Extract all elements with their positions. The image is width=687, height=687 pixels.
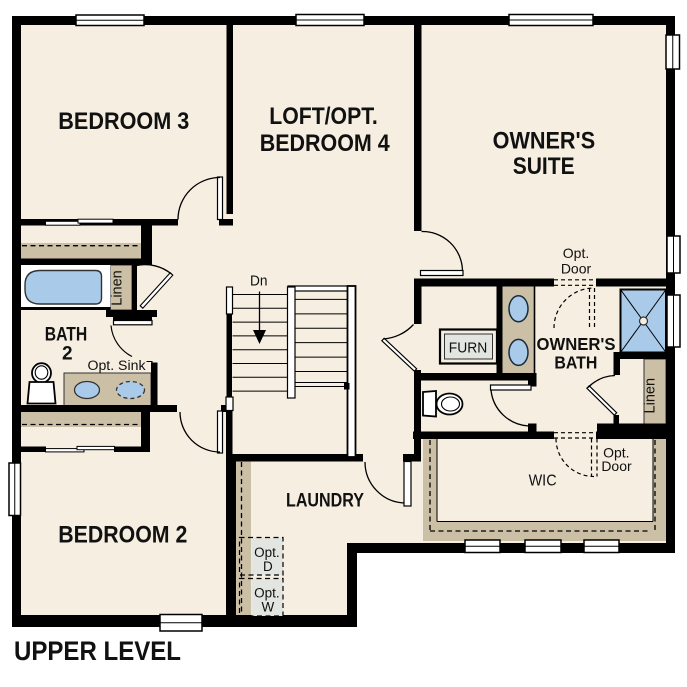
svg-text:BATH: BATH <box>45 325 88 346</box>
svg-text:FURN: FURN <box>449 339 488 356</box>
svg-text:BATH: BATH <box>554 353 597 373</box>
svg-text:OWNER'S: OWNER'S <box>493 128 596 155</box>
svg-text:BEDROOM 3: BEDROOM 3 <box>58 108 189 135</box>
svg-text:2: 2 <box>62 344 73 365</box>
svg-text:Door: Door <box>561 261 592 277</box>
svg-text:BEDROOM 4: BEDROOM 4 <box>260 130 391 157</box>
svg-text:Opt.: Opt. <box>254 545 280 560</box>
svg-text:Door: Door <box>601 458 632 474</box>
svg-text:D: D <box>263 559 273 574</box>
svg-text:UPPER LEVEL: UPPER LEVEL <box>14 636 181 666</box>
svg-text:LOFT/OPT.: LOFT/OPT. <box>269 103 378 130</box>
svg-text:WIC: WIC <box>529 473 557 490</box>
svg-text:Linen: Linen <box>110 270 126 305</box>
svg-text:LAUNDRY: LAUNDRY <box>286 489 364 511</box>
svg-text:Opt.: Opt. <box>563 245 589 261</box>
svg-text:SUITE: SUITE <box>513 153 575 180</box>
svg-text:OWNER'S: OWNER'S <box>537 334 616 354</box>
svg-text:W: W <box>262 600 275 615</box>
svg-text:Linen: Linen <box>643 378 659 413</box>
svg-text:Opt. Sink: Opt. Sink <box>88 358 146 373</box>
svg-text:Opt.: Opt. <box>254 586 280 601</box>
svg-text:BEDROOM 2: BEDROOM 2 <box>58 522 187 549</box>
svg-text:Dn: Dn <box>250 272 268 289</box>
